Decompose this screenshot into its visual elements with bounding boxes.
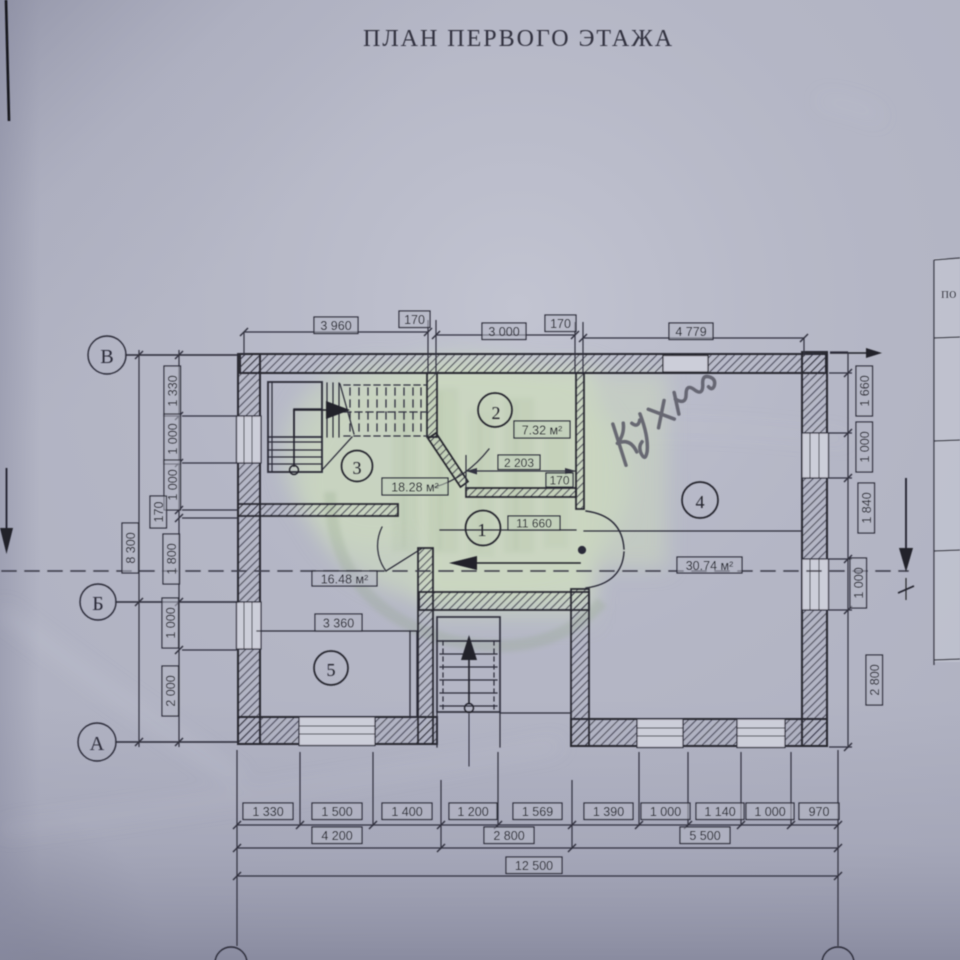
svg-text:170: 170 [549,474,569,488]
svg-text:1: 1 [478,520,487,540]
svg-text:18.28 м²: 18.28 м² [391,481,439,495]
svg-text:970: 970 [809,805,830,819]
svg-text:1 000: 1 000 [164,607,178,638]
svg-text:1 330: 1 330 [252,805,283,819]
svg-text:2 203: 2 203 [504,456,534,470]
svg-text:1 000: 1 000 [166,469,180,500]
svg-text:3 960: 3 960 [320,319,351,333]
svg-text:1 800: 1 800 [165,543,179,574]
svg-text:8 300: 8 300 [124,532,138,563]
svg-text:1 390: 1 390 [593,805,624,819]
svg-text:11 660: 11 660 [516,517,552,531]
svg-text:по: по [941,286,957,302]
svg-text:ПЛАН ПЕРВОГО ЭТАЖА: ПЛАН ПЕРВОГО ЭТАЖА [363,26,674,52]
svg-text:5: 5 [327,660,336,680]
svg-text:3 000: 3 000 [488,325,519,339]
svg-text:4 779: 4 779 [675,325,706,339]
svg-text:2 800: 2 800 [868,664,882,695]
svg-text:3: 3 [353,458,362,478]
svg-text:1 000: 1 000 [852,567,866,598]
svg-text:170: 170 [550,317,571,331]
svg-text:170: 170 [404,313,425,327]
svg-text:7.32 м²: 7.32 м² [522,424,563,438]
svg-text:1 200: 1 200 [457,805,488,819]
svg-text:1 000: 1 000 [166,423,180,454]
svg-text:1 840: 1 840 [860,492,874,523]
svg-text:30.74 м²: 30.74 м² [686,559,734,573]
svg-text:Б: Б [92,593,103,615]
svg-text:12 500: 12 500 [515,859,553,873]
svg-text:1 000: 1 000 [650,805,681,819]
svg-text:3 360: 3 360 [323,617,354,631]
svg-text:1 569: 1 569 [522,805,553,819]
svg-text:2 800: 2 800 [493,829,524,843]
svg-text:А: А [90,733,105,755]
svg-text:В: В [100,346,113,368]
svg-text:16.48 м²: 16.48 м² [321,573,369,587]
svg-text:4 200: 4 200 [321,829,352,843]
svg-text:5 500: 5 500 [689,829,720,843]
svg-text:170: 170 [152,502,166,523]
svg-text:1 400: 1 400 [391,805,422,819]
svg-text:1 000: 1 000 [754,805,785,819]
svg-text:2 000: 2 000 [164,675,178,706]
svg-text:1 660: 1 660 [858,375,872,406]
svg-text:1 140: 1 140 [704,805,735,819]
svg-text:2: 2 [492,403,501,423]
svg-text:1 330: 1 330 [166,375,180,406]
svg-text:1 000: 1 000 [858,431,872,462]
svg-text:1 500: 1 500 [321,805,352,819]
svg-text:4: 4 [696,492,705,512]
